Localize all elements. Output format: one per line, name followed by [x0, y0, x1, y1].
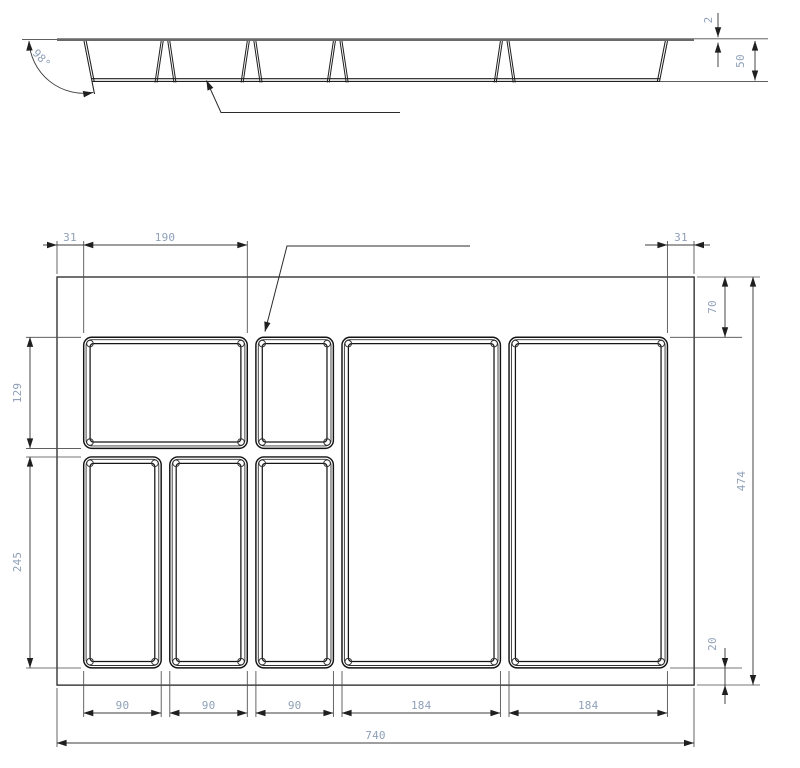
section-left-wall-inner: [86, 41, 94, 82]
angle-dimension-label: 98°: [30, 47, 53, 71]
dim-740-label: 740: [365, 729, 385, 742]
compartment-top-edge: [509, 337, 667, 668]
dim-70-label: 70: [706, 300, 719, 314]
compartment-rim-edge: [86, 340, 245, 446]
compartment-top-edge: [256, 337, 333, 448]
section-right-wall-outer: [660, 41, 668, 82]
dim-474-label: 474: [735, 471, 748, 492]
dim-31-left-label: 31: [63, 231, 77, 244]
section-left-wall-outer: [84, 41, 95, 94]
section-view: 98° 2 50: [22, 13, 768, 113]
dim-190-label: 190: [155, 231, 175, 244]
section-callout-leader: [207, 81, 401, 113]
compartment-floor-edge: [515, 344, 661, 662]
compartment-floor-edge: [348, 344, 494, 662]
plan-view: [57, 246, 694, 685]
compartment-rim-edge: [344, 340, 498, 666]
compartment-floor-edge: [262, 463, 327, 661]
compartment-6: [342, 337, 500, 668]
compartment-floor-edge: [262, 344, 327, 442]
compartment-4: [170, 457, 247, 668]
dim-184-label-1: 184: [411, 699, 432, 712]
compartment-1: [84, 337, 248, 448]
dim-31-right-label: 31: [674, 231, 688, 244]
compartment-top-edge: [342, 337, 500, 668]
compartment-rim-edge: [258, 340, 331, 446]
compartment-2: [256, 337, 333, 448]
compartment-top-edge: [84, 337, 248, 448]
height-dimension-label: 50: [734, 54, 747, 68]
compartment-rim-edge: [511, 340, 665, 666]
plan-shapes: [57, 277, 694, 685]
compartment-top-edge: [256, 457, 333, 668]
compartment-floor-edge: [176, 463, 241, 661]
dim-90-label-1: 90: [116, 699, 130, 712]
technical-drawing-canvas: 98° 2 50 31 190 31: [0, 0, 800, 768]
dim-20-label: 20: [706, 637, 719, 651]
compartment-3: [84, 457, 161, 668]
compartment-rim-edge: [258, 459, 331, 665]
dim-184-label-2: 184: [578, 699, 599, 712]
compartment-5: [256, 457, 333, 668]
dim-245-label: 245: [11, 552, 24, 572]
dim-90-label-3: 90: [288, 699, 302, 712]
dimensions: 31 190 31 129 245 70 474 20: [11, 231, 760, 747]
thickness-dimension-label: 2: [702, 17, 715, 24]
compartment-floor-edge: [90, 344, 241, 442]
section-right-wall-inner: [657, 41, 665, 82]
compartment-7: [509, 337, 667, 668]
compartment-top-edge: [170, 457, 247, 668]
compartment-top-edge: [84, 457, 161, 668]
plan-callout-leader: [265, 246, 470, 332]
section-divider-walls: [155, 41, 515, 83]
tray-outline: [57, 277, 694, 685]
compartment-rim-edge: [86, 459, 159, 665]
dim-90-label-2: 90: [202, 699, 216, 712]
compartment-rim-edge: [172, 459, 245, 665]
compartment-floor-edge: [90, 463, 155, 661]
dim-129-label: 129: [11, 383, 24, 403]
drawing-page: 98° 2 50 31 190 31: [0, 0, 800, 768]
